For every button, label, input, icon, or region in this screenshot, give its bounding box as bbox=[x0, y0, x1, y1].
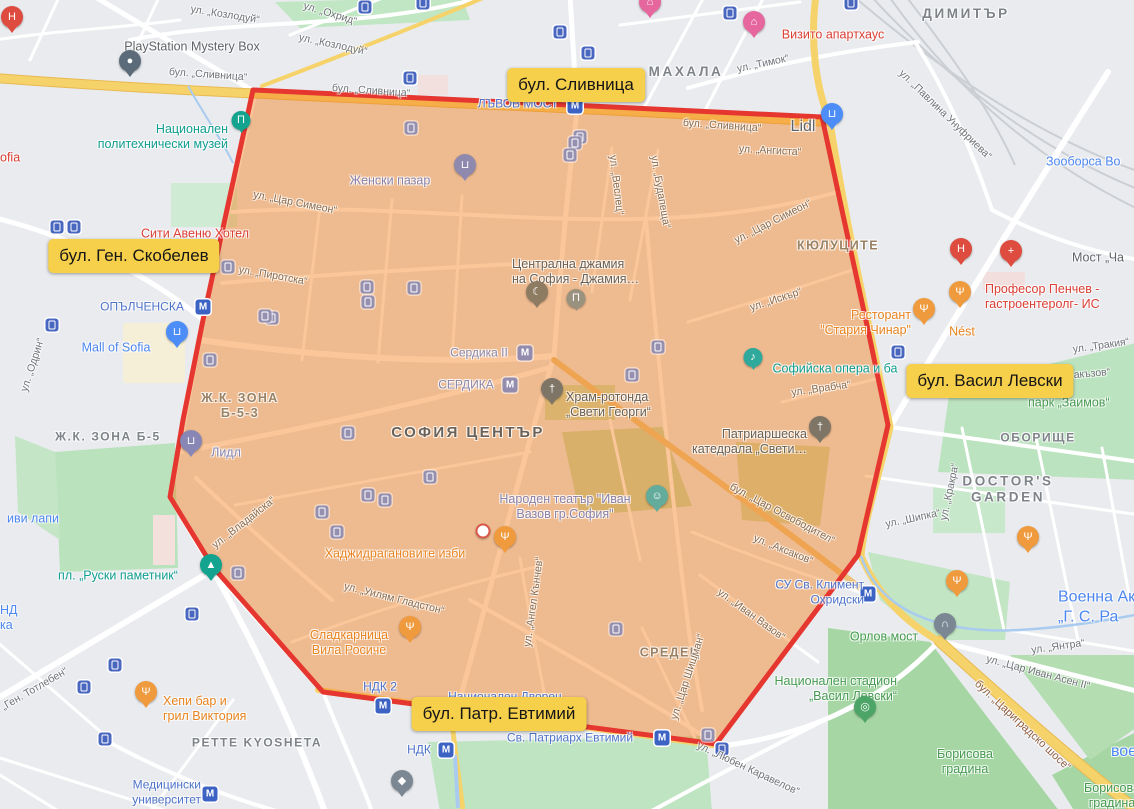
poi-label[interactable]: пл. „Руски паметник“ bbox=[58, 568, 178, 583]
poi-label[interactable]: Мост „Ча bbox=[1072, 250, 1124, 265]
tram-stop-icon[interactable] bbox=[405, 122, 418, 135]
hospital-pin-icon[interactable]: H bbox=[950, 238, 972, 260]
metro-station-label[interactable]: Медицински университет bbox=[132, 777, 201, 806]
street-label: ул. „Павлина Унуфриева“ bbox=[896, 67, 994, 162]
metro-icon[interactable]: М bbox=[439, 743, 454, 758]
hotel-glyph: ⌂ bbox=[647, 0, 654, 8]
poi-label[interactable]: Лидл bbox=[211, 445, 241, 460]
hotel-glyph: ⌂ bbox=[751, 17, 758, 28]
district-label: СОФИЯ ЦЕНТЪР bbox=[391, 424, 544, 442]
street-label: ул. „Козлодуй“ bbox=[298, 32, 369, 59]
restaurant-glyph: Ψ bbox=[1023, 532, 1032, 543]
street-label: ул. „Веслец“ bbox=[606, 154, 626, 215]
poi-label[interactable]: НД ка bbox=[0, 603, 18, 634]
street-label: бул. „Сливница“ bbox=[168, 66, 247, 84]
metro-icon[interactable]: М bbox=[376, 699, 391, 714]
restaurant-pin-icon[interactable]: Ψ bbox=[1017, 526, 1039, 548]
market_muted-glyph: ⊔ bbox=[461, 160, 470, 171]
restaurant-pin-icon[interactable]: Ψ bbox=[399, 616, 421, 638]
district-label: PETTE KYOSHETA bbox=[192, 736, 322, 751]
district-label: DOCTOR'S GARDEN bbox=[962, 474, 1053, 507]
street-label: ул. „Цар Иван Асен II“ bbox=[985, 653, 1091, 693]
metro-station-label[interactable]: ОПЪЛЧЕНСКА bbox=[100, 300, 184, 315]
tram-stop-icon[interactable] bbox=[99, 733, 112, 746]
tram-stop-icon[interactable] bbox=[51, 221, 64, 234]
poi-label[interactable]: PlayStation Mystery Box bbox=[124, 39, 259, 54]
market_muted-pin-icon[interactable]: ⊔ bbox=[454, 154, 476, 176]
tram-stop-icon[interactable] bbox=[626, 369, 639, 382]
hotel-pin-icon[interactable]: ⌂ bbox=[743, 11, 765, 33]
mosque-glyph: ☾ bbox=[532, 287, 542, 298]
theater-glyph: ☺ bbox=[651, 491, 662, 502]
road-highlight-label: бул. Сливница bbox=[507, 68, 645, 102]
monument-pin-icon[interactable]: ▲ bbox=[200, 554, 222, 576]
museum-glyph: Π bbox=[237, 115, 245, 126]
music-pin-icon[interactable]: ♪ bbox=[744, 348, 763, 367]
metro-icon[interactable]: М bbox=[503, 378, 518, 393]
street-label: акъзов“ bbox=[1073, 366, 1111, 382]
hospital-pin-icon[interactable]: H bbox=[1, 6, 23, 28]
tram-stop-icon[interactable] bbox=[845, 0, 858, 10]
poi-label[interactable]: Сладкарница Вила Росиче bbox=[310, 628, 388, 659]
poi-label[interactable]: Храм-ротонда „Свети Георги“ bbox=[566, 390, 651, 421]
street-label: ул. „Тимок“ bbox=[736, 52, 790, 75]
mall-pin-icon[interactable]: ⊔ bbox=[166, 321, 188, 343]
stadium-pin-icon[interactable]: ◎ bbox=[854, 696, 876, 718]
graduation-glyph: ◆ bbox=[398, 776, 406, 787]
restaurant-glyph: Ψ bbox=[141, 687, 150, 698]
poi-label[interactable]: Lidl bbox=[791, 117, 816, 137]
tram-stop-icon[interactable] bbox=[362, 296, 375, 309]
playstation-pin-icon[interactable]: ● bbox=[119, 50, 141, 72]
street-label: ул. „Аксаков“ bbox=[751, 532, 814, 567]
clinic-glyph: + bbox=[1008, 246, 1014, 257]
museum_muted-pin-icon[interactable]: Π bbox=[567, 289, 586, 308]
location-dot bbox=[476, 524, 491, 539]
street-label: ул. „Владайска“ bbox=[210, 494, 278, 551]
metro-icon[interactable]: М bbox=[518, 346, 533, 361]
street-label: ул. „Козлодуй“ bbox=[190, 3, 261, 27]
road-highlight-label: бул. Патр. Евтимий bbox=[412, 697, 587, 731]
tram-stop-icon[interactable] bbox=[424, 471, 437, 484]
restaurant-glyph: Ψ bbox=[405, 622, 414, 633]
street-label: ул. „Искър“ bbox=[748, 286, 803, 315]
poi-label[interactable]: вое bbox=[1111, 742, 1134, 762]
street-label: ул. „Кракра“ bbox=[938, 462, 963, 521]
street-label: бул. „Цар Освободител“ bbox=[727, 481, 836, 547]
poi-label[interactable]: Хаджидрагановите изби bbox=[325, 546, 466, 561]
church-pin-icon[interactable]: † bbox=[541, 378, 563, 400]
street-label: ул. „Уилям Гладстон“ bbox=[343, 580, 446, 617]
poi-label[interactable]: Хепи бар и грил Виктория bbox=[163, 694, 246, 725]
poi-label[interactable]: Женски пазар bbox=[350, 173, 431, 188]
district-label: ОБОРИЩЕ bbox=[1000, 431, 1075, 446]
road-highlight-label: бул. Ген. Скобелев bbox=[48, 239, 219, 273]
district-label: Ж.К. ЗОНА Б-5 bbox=[55, 430, 161, 445]
tram-stop-icon[interactable] bbox=[259, 310, 272, 323]
graduation-pin-icon[interactable]: ◆ bbox=[391, 770, 413, 792]
tram-stop-icon[interactable] bbox=[109, 659, 122, 672]
tram-stop-icon[interactable] bbox=[582, 47, 595, 60]
poi-label[interactable]: Патриаршеска катедрала „Свети… bbox=[692, 427, 807, 458]
tram-stop-icon[interactable] bbox=[892, 346, 905, 359]
tram-stop-icon[interactable] bbox=[316, 506, 329, 519]
tram-stop-icon[interactable] bbox=[404, 72, 417, 85]
restaurant-glyph: Ψ bbox=[919, 304, 928, 315]
poi-label[interactable]: иви лапи bbox=[7, 511, 59, 526]
metro-station-label[interactable]: НДК bbox=[407, 743, 431, 758]
grocery-pin-icon[interactable]: ⊔ bbox=[821, 103, 843, 125]
metro-station-label[interactable]: НДК 2 bbox=[363, 680, 397, 695]
street-label: ул. „Пиротска“ bbox=[238, 264, 309, 289]
poi-label[interactable]: Национален политехнически музей bbox=[98, 122, 228, 153]
restaurant-glyph: Ψ bbox=[955, 287, 964, 298]
poi-label[interactable]: Mall of Sofia bbox=[82, 340, 151, 355]
museum-pin-icon[interactable]: Π bbox=[232, 111, 251, 130]
tram-stop-icon[interactable] bbox=[417, 0, 430, 10]
poi-label[interactable]: Зооборса Во bbox=[1046, 154, 1120, 169]
road-highlight-label: бул. Васил Левски bbox=[906, 364, 1073, 398]
grocery-glyph: ⊔ bbox=[828, 109, 837, 120]
museum_muted-glyph: Π bbox=[572, 293, 580, 304]
hospital-glyph: H bbox=[8, 12, 16, 23]
district-label: Ж.К. ЗОНА Б-5-3 bbox=[201, 391, 278, 422]
tram-stop-icon[interactable] bbox=[408, 282, 421, 295]
metro-icon[interactable]: М bbox=[655, 731, 670, 746]
mosque-pin-icon[interactable]: ☾ bbox=[526, 281, 548, 303]
monument-glyph: ▲ bbox=[206, 560, 217, 571]
grocery_muted-pin-icon[interactable]: ⊔ bbox=[180, 430, 202, 452]
restaurant-pin-icon[interactable]: Ψ bbox=[949, 281, 971, 303]
tram-stop-icon[interactable] bbox=[186, 608, 199, 621]
street-label: ул. „Янтра“ bbox=[1030, 637, 1085, 657]
hotel-pin-icon[interactable]: ⌂ bbox=[639, 0, 661, 13]
street-label: ул. „Тракия“ bbox=[1072, 336, 1130, 357]
tram-stop-icon[interactable] bbox=[342, 427, 355, 440]
metro-icon[interactable]: М bbox=[203, 787, 218, 802]
map-viewport[interactable]: МАХАЛАДИМИТЪРКЮЛУЦИТЕЖ.К. ЗОНА Б-5Ж.К. З… bbox=[0, 0, 1134, 809]
tram-stop-icon[interactable] bbox=[361, 281, 374, 294]
tram-stop-icon[interactable] bbox=[78, 681, 91, 694]
stadium-glyph: ◎ bbox=[860, 702, 870, 713]
restaurant-glyph: Ψ bbox=[952, 576, 961, 587]
tram-stop-icon[interactable] bbox=[204, 354, 217, 367]
tram-stop-icon[interactable] bbox=[564, 149, 577, 162]
tram-stop-icon[interactable] bbox=[46, 319, 59, 332]
tram-stop-icon[interactable] bbox=[68, 221, 81, 234]
hospital-glyph: H bbox=[957, 244, 965, 255]
poi-label[interactable]: Борисова градина bbox=[1084, 781, 1134, 809]
street-label: ул. „Любен Каравелов“ bbox=[695, 740, 801, 799]
poi-label[interactable]: Професор Пенчев - гастроентеролг- ИС bbox=[985, 282, 1100, 313]
poi-label[interactable]: Софийска опера и ба bbox=[773, 361, 898, 376]
street-label: бул. „Сливница“ bbox=[682, 117, 761, 135]
street-label: бул. „Ген. Тотлебен“ bbox=[0, 665, 70, 725]
tram-stop-icon[interactable] bbox=[702, 729, 715, 742]
restaurant-pin-icon[interactable]: Ψ bbox=[946, 570, 968, 592]
poi-label[interactable]: Nést bbox=[949, 324, 975, 339]
church-pin-icon[interactable]: † bbox=[809, 416, 831, 438]
poi-label[interactable]: Военна Ак „Г. С. Ра bbox=[1058, 587, 1134, 626]
street-label: ул. „Цар Симеон“ bbox=[252, 189, 338, 218]
metro-station-label[interactable]: Св. Патриарх Евтимий bbox=[507, 731, 633, 746]
poi-label[interactable]: Ресторант "Стария Чинар" bbox=[820, 308, 911, 339]
tram-stop-icon[interactable] bbox=[331, 526, 344, 539]
metro-station-label[interactable]: СЕРДИКА bbox=[438, 378, 494, 393]
tram-stop-icon[interactable] bbox=[359, 1, 372, 14]
mall-glyph: ⊔ bbox=[173, 327, 182, 338]
restaurant-pin-icon[interactable]: Ψ bbox=[135, 681, 157, 703]
district-label: МАХАЛА bbox=[649, 64, 724, 80]
district-label: КЮЛУЦИТЕ bbox=[797, 238, 879, 253]
poi-label[interactable]: ofia bbox=[0, 150, 20, 165]
tram-stop-icon[interactable] bbox=[232, 567, 245, 580]
street-label: бул. „Сливница“ bbox=[331, 82, 410, 100]
tram-stop-icon[interactable] bbox=[222, 261, 235, 274]
grocery_muted-glyph: ⊔ bbox=[187, 436, 196, 447]
playstation-glyph: ● bbox=[127, 56, 134, 67]
restaurant-pin-icon[interactable]: Ψ bbox=[494, 526, 516, 548]
restaurant-pin-icon[interactable]: Ψ bbox=[913, 298, 935, 320]
music-glyph: ♪ bbox=[750, 352, 756, 363]
street-label: ул. „Врабча“ bbox=[791, 379, 852, 400]
poi-label[interactable]: Борисова градина bbox=[937, 747, 993, 778]
street-label: ул. „Охрид“ bbox=[302, 0, 358, 28]
poi-label[interactable]: Орлов мост bbox=[850, 629, 918, 644]
theater-pin-icon[interactable]: ☺ bbox=[646, 485, 668, 507]
district-label: ДИМИТЪР bbox=[922, 6, 1009, 22]
street-label: ул. „Одрин“ bbox=[18, 337, 47, 394]
metro-station-label[interactable]: Сердика II bbox=[450, 346, 508, 361]
restaurant-glyph: Ψ bbox=[500, 532, 509, 543]
tram-stop-icon[interactable] bbox=[362, 489, 375, 502]
metro-icon[interactable]: М bbox=[196, 300, 211, 315]
poi-label[interactable]: Национален стадион „Васил Левски“ bbox=[775, 674, 897, 705]
tram-stop-icon[interactable] bbox=[724, 7, 737, 20]
bridge-glyph: ∩ bbox=[941, 619, 949, 630]
poi-label[interactable]: Визито апартхаус bbox=[782, 27, 884, 42]
street-label: ул. „Ангиста“ bbox=[739, 143, 802, 159]
tram-stop-icon[interactable] bbox=[610, 623, 623, 636]
street-label: ул. „Шипка“ bbox=[884, 507, 941, 531]
church-glyph: † bbox=[817, 422, 823, 433]
street-label: ул. „Ангел Кънчев“ bbox=[521, 556, 546, 647]
church-glyph: † bbox=[549, 384, 555, 395]
tram-stop-icon[interactable] bbox=[652, 341, 665, 354]
clinic-pin-icon[interactable]: + bbox=[1000, 240, 1022, 262]
tram-stop-icon[interactable] bbox=[554, 26, 567, 39]
poi-label[interactable]: Народен театър "Иван Вазов гр.София" bbox=[499, 492, 630, 523]
metro-station-label[interactable]: СУ Св. Климент Охридски bbox=[775, 577, 864, 606]
map-labels-layer: МАХАЛАДИМИТЪРКЮЛУЦИТЕЖ.К. ЗОНА Б-5Ж.К. З… bbox=[0, 0, 1134, 809]
street-label: ул. „Будапеща“ bbox=[647, 155, 672, 230]
bridge-pin-icon[interactable]: ∩ bbox=[934, 613, 956, 635]
tram-stop-icon[interactable] bbox=[379, 494, 392, 507]
